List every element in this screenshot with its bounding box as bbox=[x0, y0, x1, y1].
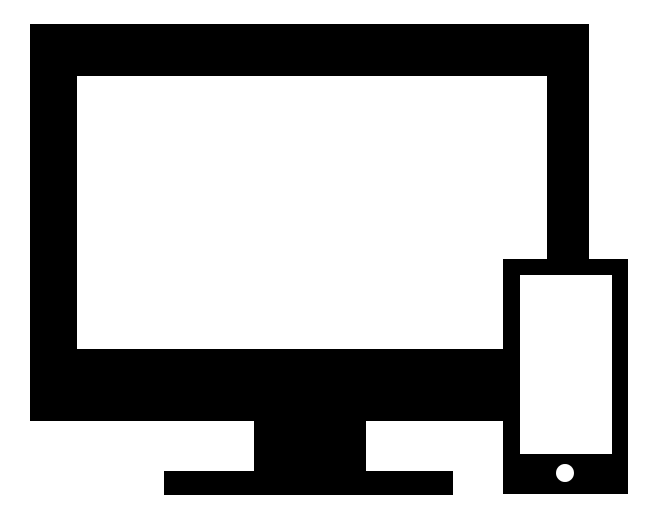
phone-home-button-icon bbox=[556, 464, 574, 482]
devices-illustration bbox=[0, 0, 659, 517]
phone-screen bbox=[520, 275, 612, 454]
monitor-stand-base bbox=[164, 471, 453, 495]
responsive-devices-icon bbox=[0, 0, 659, 517]
